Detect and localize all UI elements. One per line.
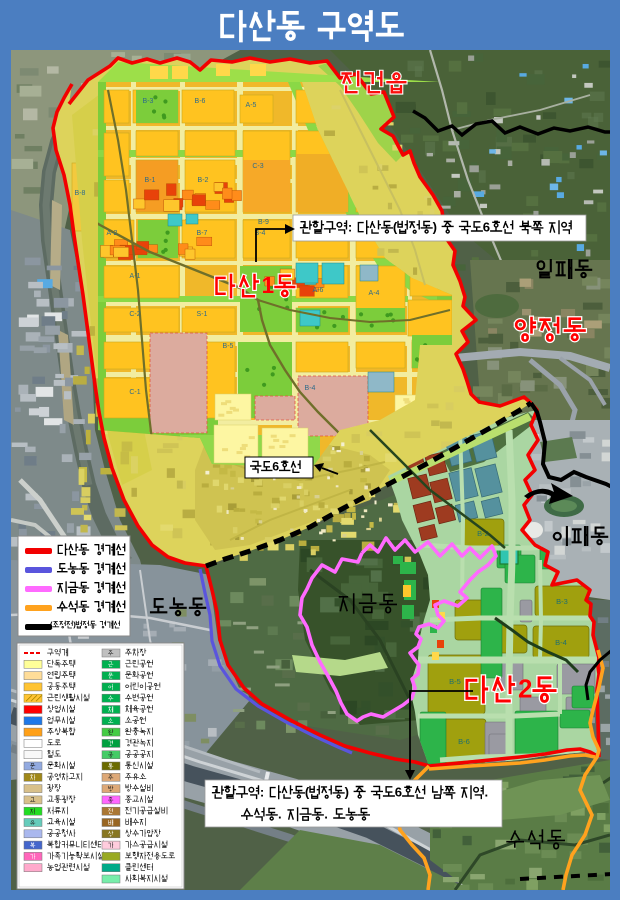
svg-text:2: 2: [518, 674, 532, 704]
svg-text:(: (: [393, 219, 398, 234]
svg-text:1: 1: [262, 272, 275, 298]
svg-text:C-3: C-3: [252, 163, 263, 170]
svg-text:B-7: B-7: [197, 230, 208, 237]
svg-text:B-5: B-5: [449, 677, 461, 686]
svg-text:.: .: [324, 806, 328, 821]
svg-text:B-3: B-3: [556, 597, 568, 606]
svg-text:6: 6: [483, 219, 490, 234]
svg-text::: :: [348, 219, 352, 234]
svg-text:A-2: A-2: [107, 230, 118, 237]
svg-text:): ): [345, 784, 349, 799]
svg-text:B-4: B-4: [305, 385, 316, 392]
svg-text:B-6: B-6: [195, 98, 206, 105]
svg-text:B-5: B-5: [223, 343, 234, 350]
svg-text:A-1: A-1: [130, 273, 141, 280]
svg-text:C-2: C-2: [129, 311, 140, 318]
svg-text:B-4: B-4: [555, 638, 567, 647]
svg-text:B-9: B-9: [258, 219, 269, 226]
svg-text:A-5: A-5: [246, 102, 257, 109]
svg-text:B-8: B-8: [75, 190, 86, 197]
svg-text:B-6: B-6: [458, 737, 470, 746]
svg-text:6: 6: [395, 784, 402, 799]
svg-text:B-3: B-3: [143, 98, 154, 105]
svg-text:B-1: B-1: [145, 177, 156, 184]
svg-text:C-1: C-1: [129, 389, 140, 396]
svg-text::: :: [260, 784, 264, 799]
svg-text:A-4: A-4: [369, 290, 380, 297]
svg-text:(: (: [305, 784, 310, 799]
svg-text:): ): [433, 219, 437, 234]
svg-text:.: .: [485, 784, 489, 799]
svg-text:6: 6: [272, 460, 279, 474]
svg-text:B-2: B-2: [198, 177, 209, 184]
svg-text:S-1: S-1: [197, 311, 208, 318]
svg-text:A-6: A-6: [313, 287, 324, 294]
svg-text:.: .: [278, 806, 282, 821]
